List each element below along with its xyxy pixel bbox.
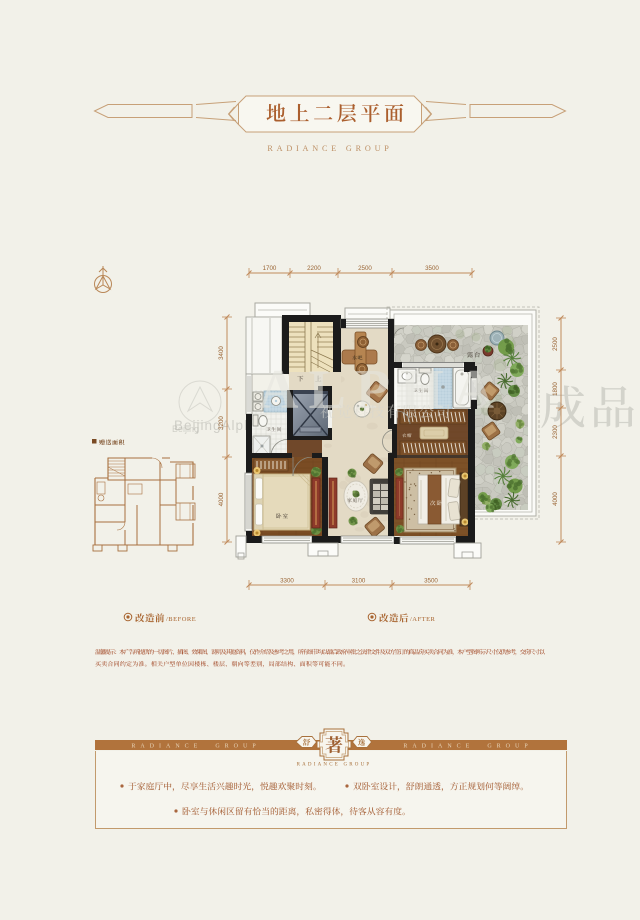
svg-text:3200: 3200 (218, 416, 225, 430)
svg-text:2300: 2300 (552, 425, 559, 439)
svg-text:Beijing: Beijing (172, 424, 199, 434)
svg-text:2200: 2200 (307, 265, 321, 272)
svg-text:2500: 2500 (358, 265, 372, 272)
svg-text:/AFTER: /AFTER (410, 616, 436, 623)
svg-text:1700: 1700 (263, 265, 277, 272)
svg-text:RADIANCE GROUP: RADIANCE GROUP (131, 744, 260, 750)
svg-text:RADIANCE GROUP: RADIANCE GROUP (297, 763, 372, 768)
svg-text:3100: 3100 (352, 578, 366, 585)
svg-text:3400: 3400 (218, 346, 225, 360)
svg-text:RADIANCE GROUP: RADIANCE GROUP (267, 144, 392, 153)
svg-text:2500: 2500 (552, 337, 559, 351)
svg-text:1800: 1800 (552, 382, 559, 396)
svg-text:RADIANCE GROUP: RADIANCE GROUP (403, 744, 532, 750)
svg-text:3500: 3500 (424, 578, 438, 585)
svg-text:4000: 4000 (552, 492, 559, 506)
svg-text:/BEFORE: /BEFORE (166, 616, 196, 623)
svg-text:4000: 4000 (218, 492, 225, 506)
svg-text:3500: 3500 (425, 265, 439, 272)
svg-text:3300: 3300 (280, 578, 294, 585)
